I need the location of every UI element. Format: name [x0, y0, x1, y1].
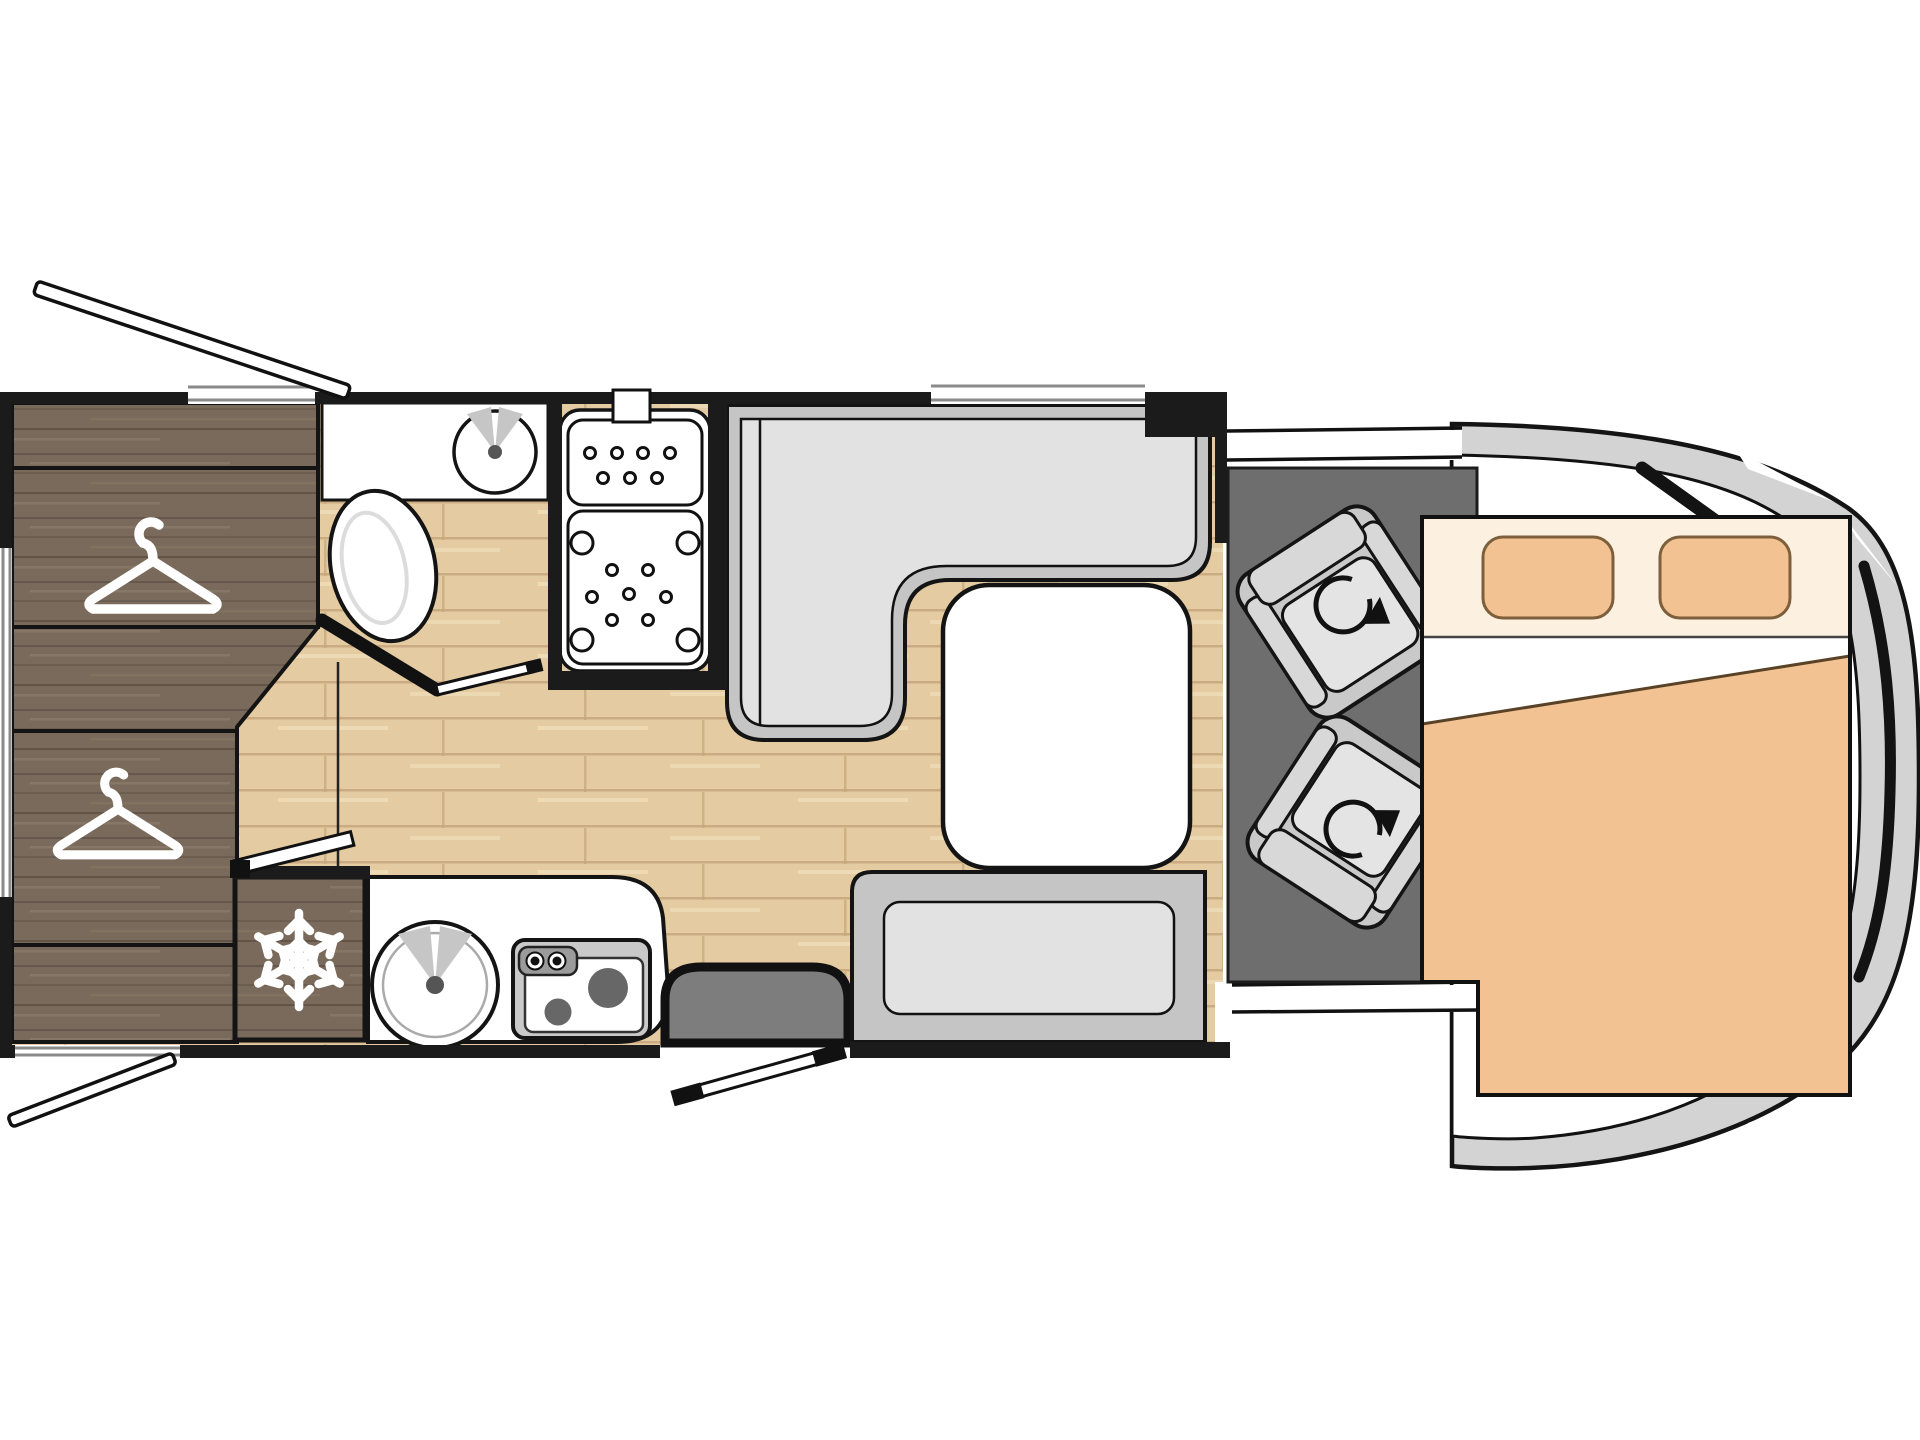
kitchen: [235, 877, 668, 1048]
motorhome-floorplan: [0, 0, 1920, 1440]
bed-blanket: [1422, 656, 1850, 1095]
pillow: [1660, 537, 1790, 618]
cab-sill-top: [1227, 428, 1462, 460]
hatch-flap-top: [33, 281, 350, 399]
kitchen-sink: [372, 922, 498, 1048]
side-bench: [852, 872, 1205, 1042]
burner-large: [588, 968, 628, 1008]
shower-wall: [548, 403, 562, 690]
entry-step: [665, 967, 848, 1043]
wardrobe-lower: [12, 731, 237, 945]
cab-sill-bottom: [1232, 982, 1478, 1012]
stove: [513, 940, 650, 1038]
shower-vent: [613, 390, 650, 422]
entry-door-open: [670, 1043, 847, 1107]
window-rear-top: [188, 384, 315, 404]
drawer-unit: [12, 945, 237, 1042]
shower-wall: [708, 403, 727, 690]
pillow: [1483, 537, 1613, 618]
dinette-table: [943, 585, 1190, 868]
wall-corner-front: [1145, 392, 1227, 437]
shower: [560, 410, 710, 671]
floorplan-canvas: [0, 0, 1920, 1440]
window-rear-side: [0, 548, 12, 897]
wardrobe-upper: [12, 468, 318, 627]
window-bottom: [15, 1045, 180, 1058]
window-dinette: [931, 383, 1145, 404]
burner-small: [545, 999, 572, 1026]
wardrobe-shelf: [12, 403, 318, 468]
shower-wall: [548, 671, 727, 690]
drop-down-bed: [1422, 517, 1850, 1095]
hatch-flap-bottom: [8, 1053, 177, 1127]
